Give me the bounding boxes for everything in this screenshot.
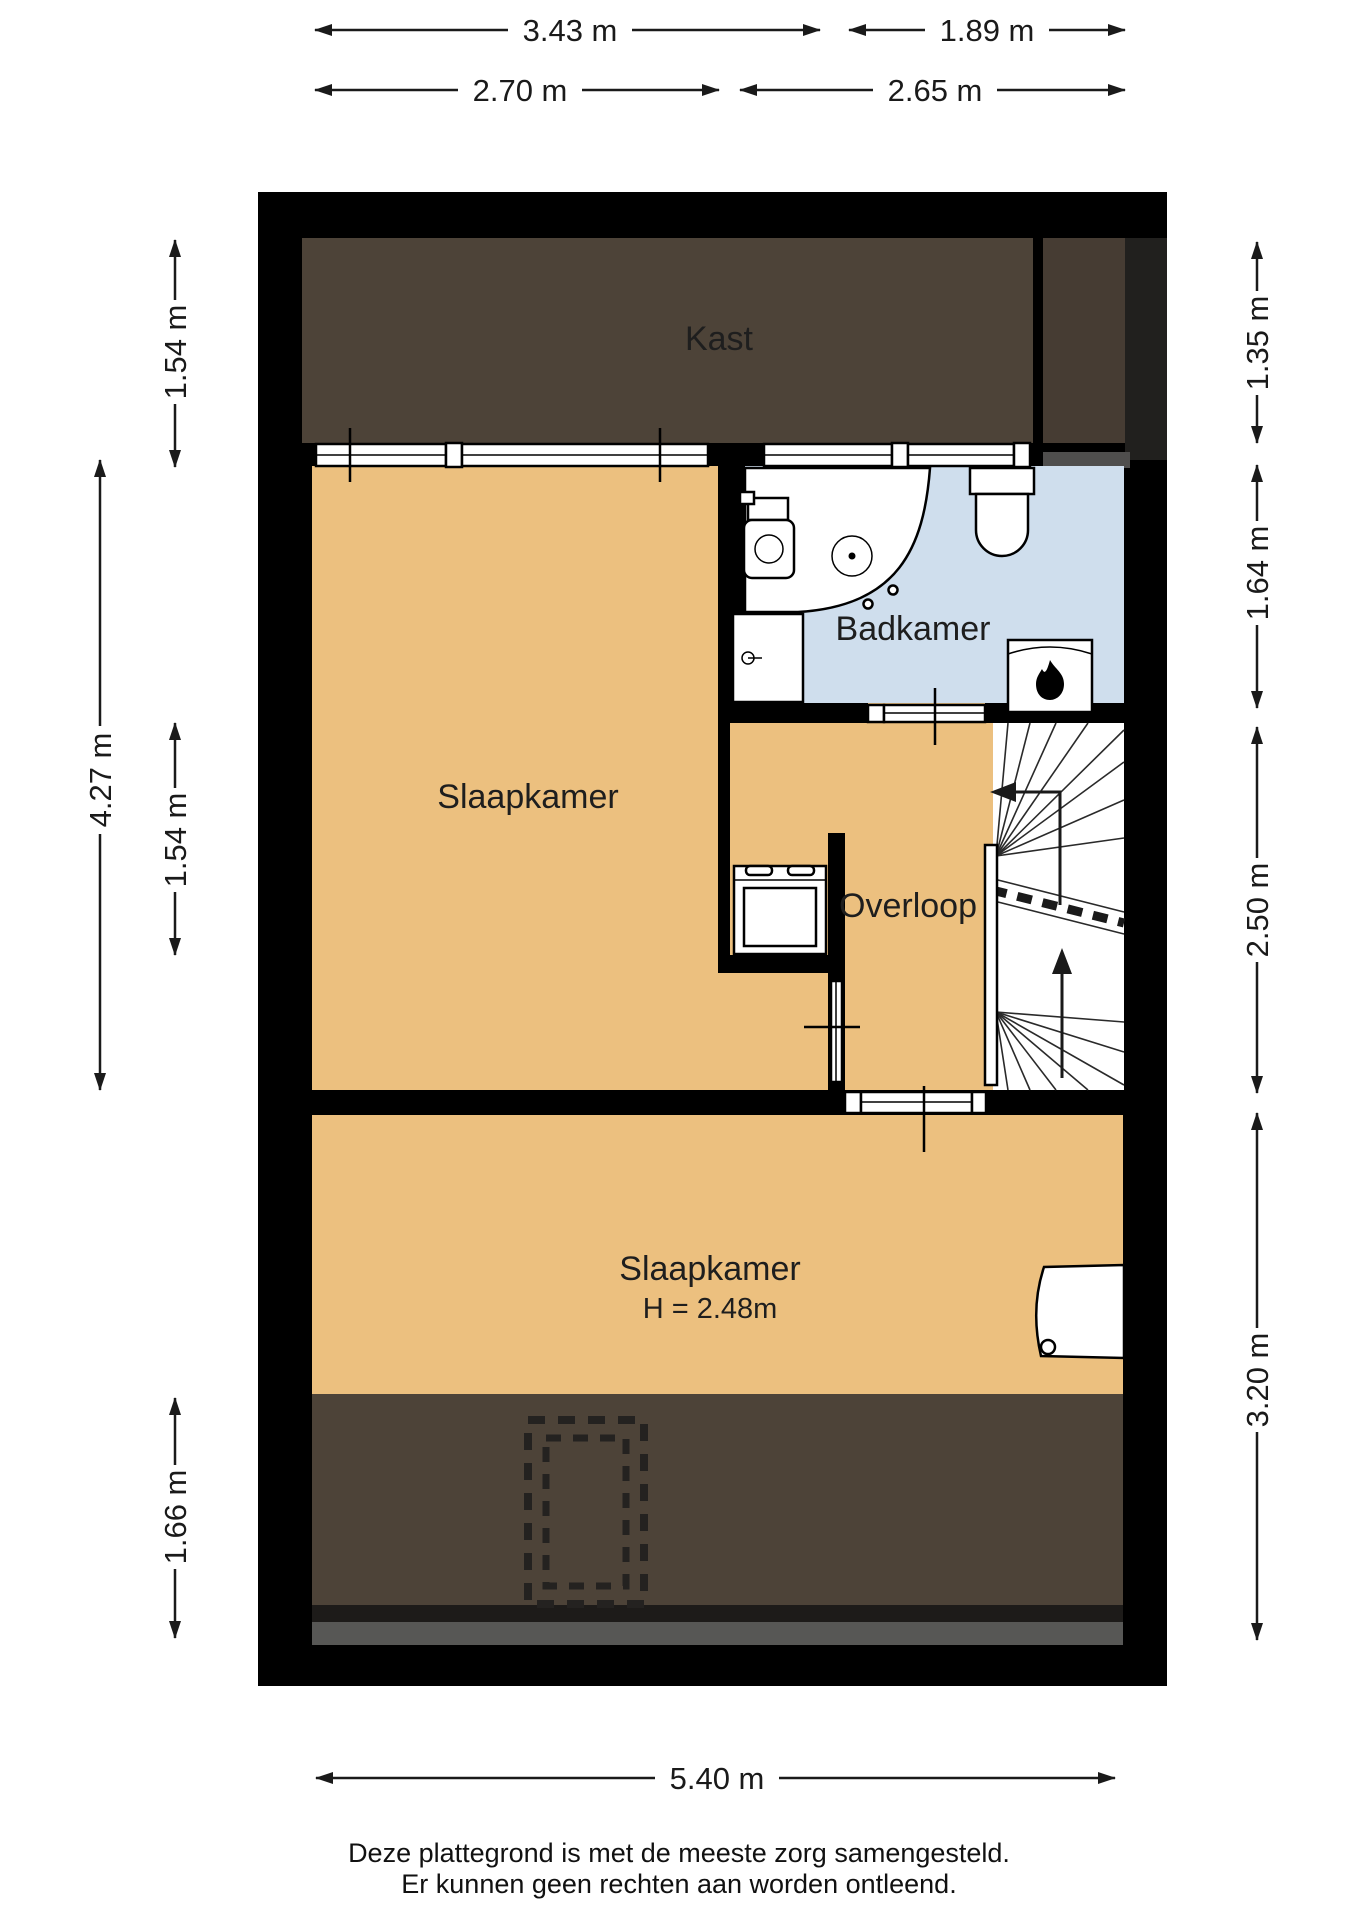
stair-handrail [985,845,997,1085]
slaapkamer2-door [1036,1265,1124,1358]
dimension-bottom-540: 5.40 m [316,1761,1115,1796]
dimension-label: 2.70 m [473,73,568,108]
kast-floor-right [1043,238,1125,443]
dimension-label: 2.65 m [888,73,983,108]
dimension-label: 3.43 m [523,13,618,48]
dimension-right-250: 2.50 m [1240,727,1275,1093]
dimension-left-154-kast: 1.54 m [158,240,193,467]
dimension-label: 2.50 m [1240,863,1275,958]
attic-strip-dark [312,1605,1123,1622]
dimension-top-343: 3.43 m [315,13,820,48]
dimension-top-270: 2.70 m [315,73,719,108]
room-label-overloop: Overloop [839,887,977,925]
dimension-left-166: 1.66 m [158,1398,193,1638]
dimension-label: 1.35 m [1240,296,1275,391]
water-heater [1008,640,1092,712]
attic-strip-gray [312,1622,1123,1645]
dimension-right-320: 3.20 m [1240,1113,1275,1640]
floor-plan-page: 3.43 m 1.89 m 2.70 m 2.65 m 1.54 m 4.27 … [0,0,1358,1920]
dimension-left-154-overloop: 1.54 m [158,723,193,955]
dimension-label: 1.66 m [158,1470,193,1565]
window [316,444,446,466]
disclaimer-line-2: Er kunnen geen rechten aan worden ontlee… [401,1869,956,1899]
half-wall [1043,452,1130,468]
middle-bottom-wall [258,1090,1167,1115]
room-label-badkamer: Badkamer [836,610,991,648]
dimension-label: 1.54 m [158,305,193,400]
dimension-label: 3.20 m [1240,1333,1275,1428]
dimension-label: 1.54 m [158,793,193,888]
attic-floor [312,1394,1123,1605]
dimension-label: 4.27 m [83,733,118,828]
stub-wall-horizontal [718,955,845,973]
dimension-top-265: 2.65 m [740,73,1125,108]
floor-plan-svg: 3.43 m 1.89 m 2.70 m 2.65 m 1.54 m 4.27 … [0,0,1358,1920]
dimension-right-135: 1.35 m [1240,242,1275,443]
disclaimer-line-1: Deze plattegrond is met de meeste zorg s… [348,1838,1010,1868]
bathroom-cabinet [733,614,803,702]
room-label-slaapkamer1: Slaapkamer [437,778,618,816]
room-label-slaapkamer2-height: H = 2.48m [643,1293,778,1325]
window-mullion [446,443,462,467]
dimension-label: 5.40 m [670,1761,765,1796]
window [764,444,892,466]
washing-machine [734,866,826,954]
room-label-slaapkamer2: Slaapkamer [619,1250,800,1288]
badkamer-bottom-wall-left [718,703,868,723]
window [908,444,1014,466]
dimension-label: 1.89 m [940,13,1035,48]
shower-drain-dot [849,553,856,560]
toilet [970,468,1034,556]
window-mullion [1014,443,1030,467]
window [462,444,708,466]
divider-wall [718,723,730,973]
kast-floor [302,238,1033,443]
dimension-right-164: 1.64 m [1240,465,1275,708]
washbasin [740,492,794,578]
room-label-kast: Kast [685,320,754,358]
window-mullion [892,443,908,467]
dimension-left-427: 4.27 m [83,460,118,1090]
dimension-top-189: 1.89 m [849,13,1125,48]
right-wall-shadow [1125,238,1167,460]
dimension-label: 1.64 m [1240,526,1275,621]
